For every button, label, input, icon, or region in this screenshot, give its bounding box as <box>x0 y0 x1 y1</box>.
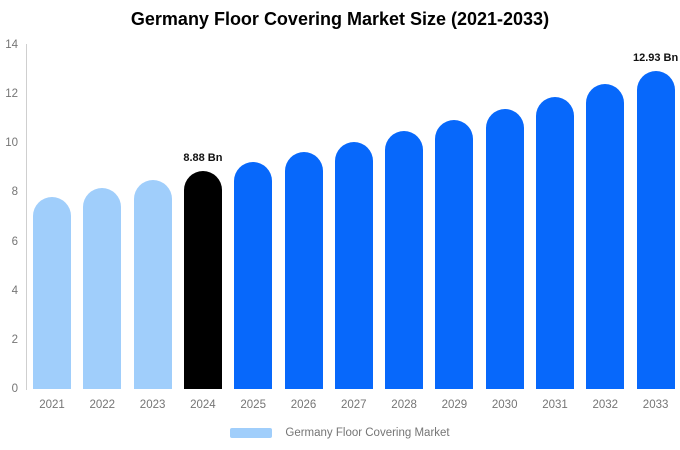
bar-2028 <box>385 131 423 389</box>
bar-2030 <box>486 109 524 389</box>
legend-label: Germany Floor Covering Market <box>285 427 449 439</box>
x-tick-label: 2026 <box>291 399 317 412</box>
bar-2033 <box>637 71 675 389</box>
x-tick-label: 2032 <box>593 399 619 412</box>
y-tick-label: 12 <box>0 87 18 101</box>
y-tick-label: 14 <box>0 38 18 52</box>
y-tick-label: 6 <box>0 235 18 249</box>
x-tick-label: 2027 <box>341 399 367 412</box>
bar-2025 <box>234 162 272 390</box>
y-tick-label: 2 <box>0 333 18 347</box>
x-tick-label: 2022 <box>90 399 116 412</box>
legend: Germany Floor Covering Market <box>0 424 680 442</box>
x-tick-label: 2028 <box>391 399 417 412</box>
x-tick-label: 2021 <box>39 399 65 412</box>
y-tick-label: 10 <box>0 136 18 150</box>
bar-2023 <box>134 180 172 389</box>
bar-value-label: 12.93 Bn <box>633 52 678 65</box>
x-tick-label: 2030 <box>492 399 518 412</box>
plot-area: 20212022202320248.88 Bn20252026202720282… <box>27 45 677 389</box>
bar-2031 <box>536 97 574 389</box>
bar-2024 <box>184 171 222 389</box>
bar-2026 <box>285 152 323 389</box>
bar-value-label: 8.88 Bn <box>183 152 222 165</box>
bar-2029 <box>435 120 473 389</box>
bar-2027 <box>335 142 373 389</box>
chart-title: Germany Floor Covering Market Size (2021… <box>0 9 680 29</box>
y-tick-label: 4 <box>0 284 18 298</box>
bar-2032 <box>586 84 624 389</box>
x-tick-label: 2029 <box>442 399 468 412</box>
x-tick-label: 2031 <box>542 399 568 412</box>
y-tick-label: 8 <box>0 185 18 199</box>
x-tick-label: 2033 <box>643 399 669 412</box>
legend-swatch <box>230 428 272 438</box>
x-tick-label: 2025 <box>240 399 266 412</box>
bar-2021 <box>33 197 71 389</box>
y-tick-label: 0 <box>0 382 18 396</box>
x-tick-label: 2024 <box>190 399 216 412</box>
x-tick-label: 2023 <box>140 399 166 412</box>
chart-container: Germany Floor Covering Market Size (2021… <box>0 0 680 450</box>
bar-2022 <box>83 188 121 389</box>
